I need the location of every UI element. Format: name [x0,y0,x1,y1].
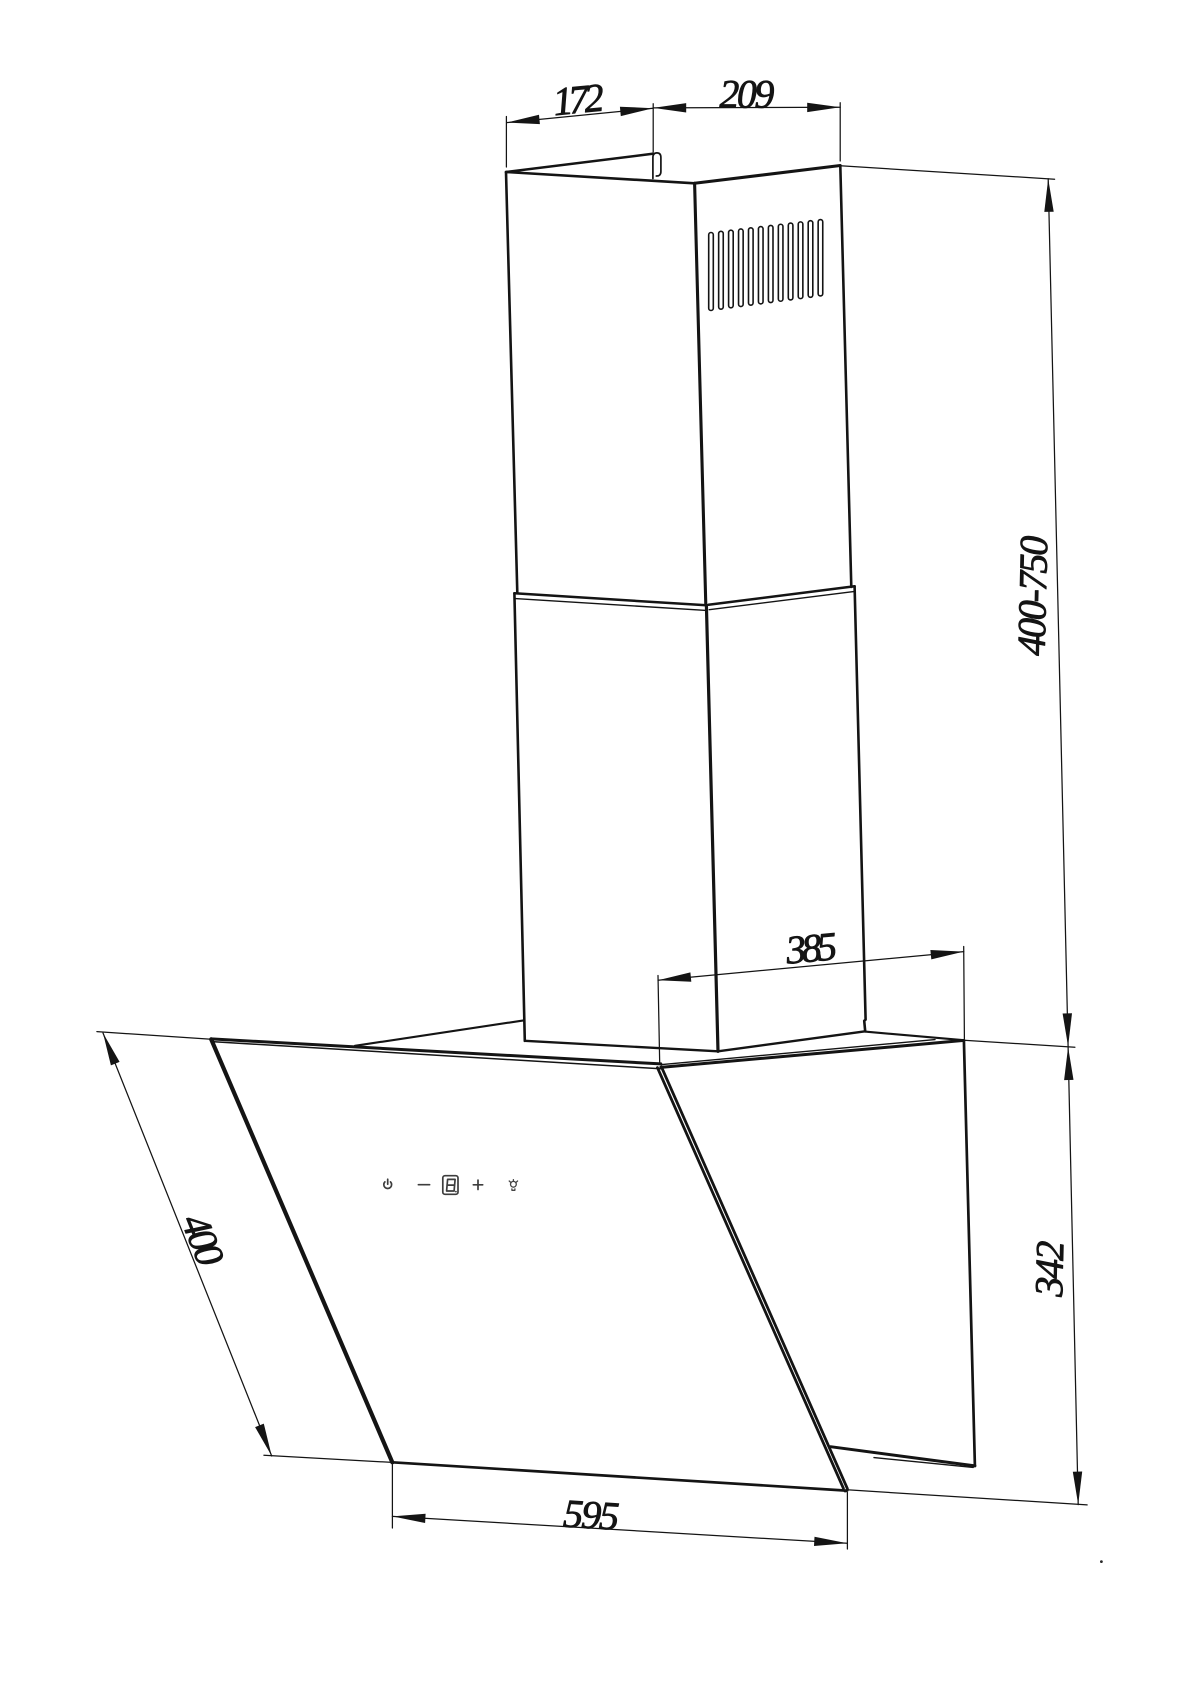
svg-text:400-750: 400-750 [1009,535,1057,656]
svg-text:172: 172 [551,75,606,125]
svg-text:209: 209 [719,72,774,117]
svg-text:400: 400 [172,1207,233,1272]
svg-text:342: 342 [1026,1240,1072,1298]
svg-text:595: 595 [562,1491,621,1539]
svg-text:385: 385 [783,923,839,973]
